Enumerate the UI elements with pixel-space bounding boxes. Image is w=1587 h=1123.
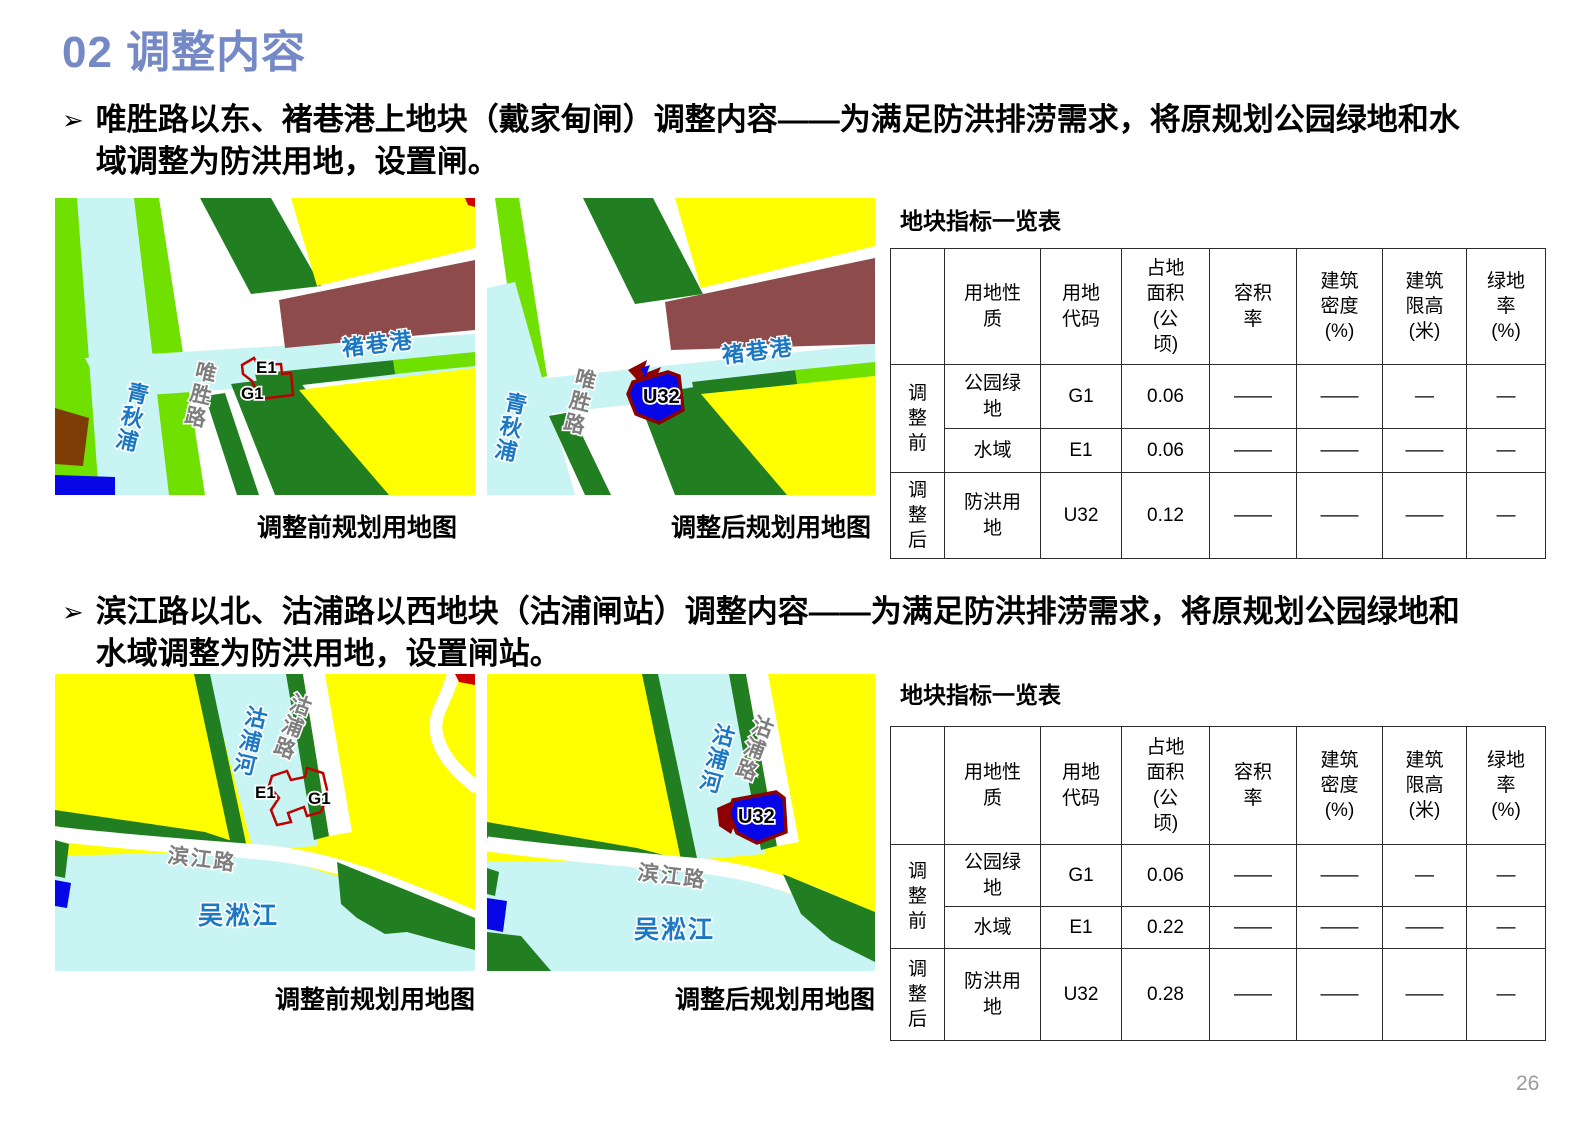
bullet-1: ➢ 唯胜路以东、褚巷港上地块（戴家甸闸）调整内容——为满足防洪排涝需求，将原规划…: [62, 99, 1484, 183]
header-green: 绿地 率 (%): [1467, 727, 1546, 845]
parcel-e1-label: E1: [256, 358, 277, 377]
cell-green: —: [1467, 429, 1546, 473]
cell-density: ——: [1297, 845, 1383, 907]
table-row: 水域 E1 0.06 —— —— —— —: [891, 429, 1546, 473]
river-south-label: 吴淞江: [634, 916, 715, 944]
cell-far: ——: [1210, 907, 1297, 949]
header-height: 建筑 限高 (米): [1383, 727, 1467, 845]
table-header-row: 用地性 质 用地 代码 占地 面积 (公 顷) 容积 率 建筑 密度 (%) 建…: [891, 249, 1546, 365]
parcel-e1-label: E1: [255, 783, 276, 802]
cell-density: ——: [1297, 429, 1383, 473]
indicator-table-1: 用地性 质 用地 代码 占地 面积 (公 顷) 容积 率 建筑 密度 (%) 建…: [890, 248, 1546, 559]
cell-area: 0.12: [1122, 473, 1210, 559]
header-density: 建筑 密度 (%): [1297, 249, 1383, 365]
cell-code: U32: [1041, 949, 1122, 1041]
cell-area: 0.06: [1122, 429, 1210, 473]
cell-nature: 水域: [945, 429, 1041, 473]
cell-green: —: [1467, 365, 1546, 429]
cell-height: ——: [1383, 907, 1467, 949]
header-far: 容积 率: [1210, 727, 1297, 845]
group-before: 调 整 前: [891, 845, 945, 949]
cell-code: G1: [1041, 845, 1122, 907]
bullet-arrow-icon: ➢: [62, 595, 84, 675]
group-after: 调 整 后: [891, 473, 945, 559]
slide: 02 调整内容 ➢ 唯胜路以东、褚巷港上地块（戴家甸闸）调整内容——为满足防洪排…: [0, 0, 1587, 1123]
cell-code: G1: [1041, 365, 1122, 429]
cell-code: E1: [1041, 907, 1122, 949]
header-height: 建筑 限高 (米): [1383, 249, 1467, 365]
cell-nature: 水域: [945, 907, 1041, 949]
group-after: 调 整 后: [891, 949, 945, 1041]
header-nature: 用地性 质: [945, 727, 1041, 845]
table-row: 调 整 后 防洪用 地 U32 0.12 —— —— —— —: [891, 473, 1546, 559]
parcel-g1-label: G1: [308, 789, 331, 808]
map-before-caption: 调整前规划用地图: [55, 980, 475, 1016]
bullet-2-text: 滨江路以北、沽浦路以西地块（沽浦闸站）调整内容——为满足防洪排涝需求，将原规划公…: [96, 591, 1484, 675]
map-before-daijiadian: 青秋浦 唯胜路 褚巷港 E1 G1: [55, 198, 475, 495]
bullet-1-text: 唯胜路以东、褚巷港上地块（戴家甸闸）调整内容——为满足防洪排涝需求，将原规划公园…: [96, 99, 1484, 183]
cell-height: ——: [1383, 429, 1467, 473]
map-after-caption: 调整后规划用地图: [487, 508, 871, 544]
cell-area: 0.06: [1122, 365, 1210, 429]
cell-green: —: [1467, 949, 1546, 1041]
header-code: 用地 代码: [1041, 727, 1122, 845]
cell-far: ——: [1210, 949, 1297, 1041]
page-number: 26: [1516, 1072, 1539, 1096]
cell-area: 0.28: [1122, 949, 1210, 1041]
table-row: 调 整 前 公园绿 地 G1 0.06 —— —— — —: [891, 845, 1546, 907]
header-far: 容积 率: [1210, 249, 1297, 365]
cell-area: 0.22: [1122, 907, 1210, 949]
header-area: 占地 面积 (公 顷): [1122, 727, 1210, 845]
indicator-table-2: 用地性 质 用地 代码 占地 面积 (公 顷) 容积 率 建筑 密度 (%) 建…: [890, 726, 1546, 1041]
cell-density: ——: [1297, 949, 1383, 1041]
header-density: 建筑 密度 (%): [1297, 727, 1383, 845]
cell-height: ——: [1383, 949, 1467, 1041]
cell-far: ——: [1210, 845, 1297, 907]
cell-nature: 公园绿 地: [945, 845, 1041, 907]
cell-green: —: [1467, 845, 1546, 907]
parcel-u32-label: U32: [738, 806, 775, 828]
cell-nature: 防洪用 地: [945, 949, 1041, 1041]
brown-landuse: [55, 408, 89, 466]
cell-green: —: [1467, 907, 1546, 949]
cell-far: ——: [1210, 429, 1297, 473]
cell-nature: 公园绿 地: [945, 365, 1041, 429]
cell-height: —: [1383, 845, 1467, 907]
bullet-arrow-icon: ➢: [62, 103, 84, 183]
cell-density: ——: [1297, 365, 1383, 429]
cell-area: 0.06: [1122, 845, 1210, 907]
table-row: 调 整 前 公园绿 地 G1 0.06 —— —— — —: [891, 365, 1546, 429]
indicator-table-2-title: 地块指标一览表: [900, 676, 1061, 710]
header-corner: [891, 727, 945, 845]
cell-density: ——: [1297, 473, 1383, 559]
cell-height: —: [1383, 365, 1467, 429]
map-after-caption: 调整后规划用地图: [487, 980, 875, 1016]
river-south-label: 吴淞江: [198, 902, 279, 930]
header-corner: [891, 249, 945, 365]
bullet-2: ➢ 滨江路以北、沽浦路以西地块（沽浦闸站）调整内容——为满足防洪排涝需求，将原规…: [62, 591, 1484, 675]
header-area: 占地 面积 (公 顷): [1122, 249, 1210, 365]
cell-far: ——: [1210, 365, 1297, 429]
cell-code: U32: [1041, 473, 1122, 559]
header-code: 用地 代码: [1041, 249, 1122, 365]
parcel-g1-label: G1: [241, 384, 264, 403]
header-nature: 用地性 质: [945, 249, 1041, 365]
cell-density: ——: [1297, 907, 1383, 949]
blue-landuse: [55, 475, 115, 495]
cell-far: ——: [1210, 473, 1297, 559]
cell-height: ——: [1383, 473, 1467, 559]
page-title: 02 调整内容: [62, 16, 306, 80]
header-green: 绿地 率 (%): [1467, 249, 1546, 365]
cell-green: —: [1467, 473, 1546, 559]
map-after-gupu: 沽浦河 沽浦路 U32 滨江路 吴淞江: [487, 674, 875, 971]
table-header-row: 用地性 质 用地 代码 占地 面积 (公 顷) 容积 率 建筑 密度 (%) 建…: [891, 727, 1546, 845]
table-row: 水域 E1 0.22 —— —— —— —: [891, 907, 1546, 949]
table-row: 调 整 后 防洪用 地 U32 0.28 —— —— —— —: [891, 949, 1546, 1041]
map-after-daijiadian: 青秋浦 唯胜路 褚巷港 U32: [487, 198, 875, 495]
map-before-gupu: 沽浦河 沽浦路 E1 G1 滨江路 吴淞江: [55, 674, 475, 971]
group-before: 调 整 前: [891, 365, 945, 473]
map-before-caption: 调整前规划用地图: [55, 508, 457, 544]
parcel-u32-label: U32: [643, 386, 680, 408]
cell-nature: 防洪用 地: [945, 473, 1041, 559]
cell-code: E1: [1041, 429, 1122, 473]
indicator-table-1-title: 地块指标一览表: [900, 202, 1061, 236]
